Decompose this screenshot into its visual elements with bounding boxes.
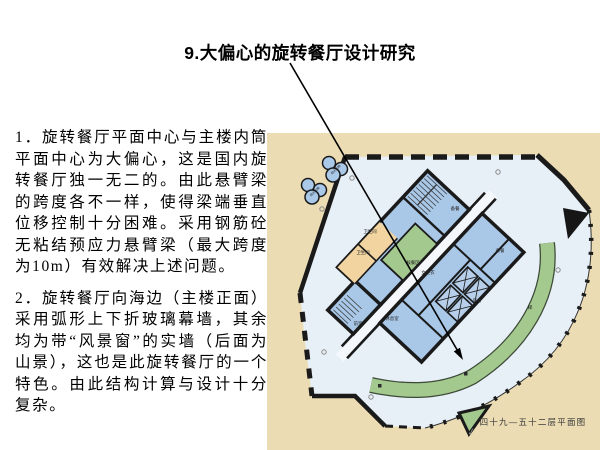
floor-plan-drawing: 梯 xyxy=(267,133,600,450)
anteroom-label: 前室 xyxy=(354,320,363,327)
plan-caption: 四十九—五十二层平面图 xyxy=(480,417,587,427)
band-mark-1 xyxy=(464,372,468,376)
band-mark-2 xyxy=(378,384,382,388)
band-stair-label: 梯 xyxy=(528,304,533,311)
slide-title: 9.大偏心的旋转餐厅设计研究 xyxy=(0,40,600,65)
floor-plan-photo: 梯 xyxy=(267,133,600,450)
pantry-top-label: 备餐 xyxy=(451,205,460,212)
paragraph-2: 2．旋转餐厅向海边（主楼正面）采用弧形上下折玻璃幕墙，其余均为带“风景窗”的实墙… xyxy=(15,288,268,417)
restroom-upper-label: 卫生间 xyxy=(363,228,376,235)
lounge-label: 休息室 xyxy=(385,315,399,322)
presentation-slide: 9.大偏心的旋转餐厅设计研究 1．旋转餐厅平面中心与主楼内筒平面中心为大偏心，这… xyxy=(0,0,600,450)
waiting-area-label: 候餐区 xyxy=(406,259,420,266)
restroom-lower-label: 卫生间 xyxy=(356,249,369,256)
women-changing-label: 女更衣 xyxy=(421,269,435,276)
service-room-label: 房务 xyxy=(473,297,482,304)
pantry-right-label: 备餐 xyxy=(496,247,505,254)
paragraph-1: 1．旋转餐厅平面中心与主楼内筒平面中心为大偏心，这是国内旋转餐厅独一无二的。由此… xyxy=(15,127,268,278)
body-text-block: 1．旋转餐厅平面中心与主楼内筒平面中心为大偏心，这是国内旋转餐厅独一无二的。由此… xyxy=(15,127,268,427)
